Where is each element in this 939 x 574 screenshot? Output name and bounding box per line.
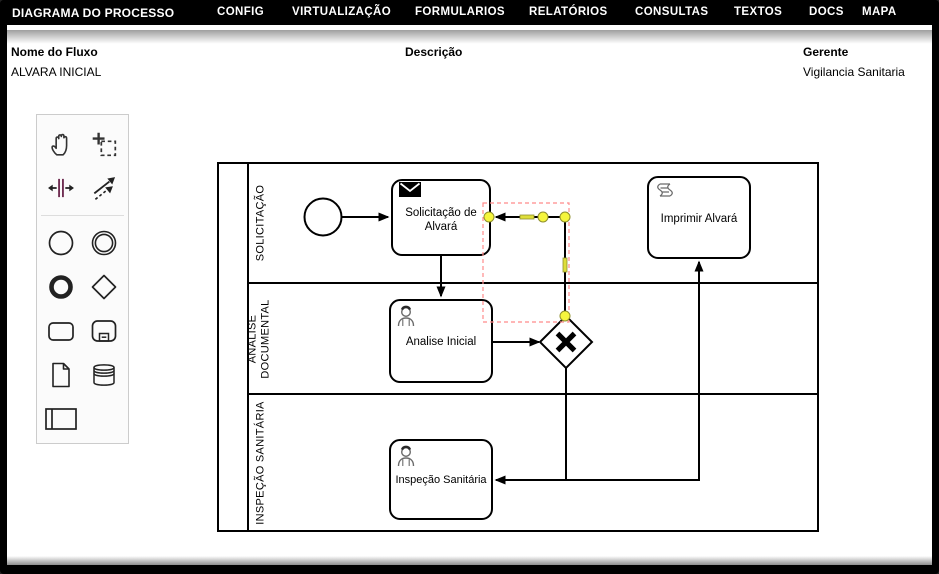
bpmn-canvas[interactable] bbox=[0, 0, 939, 574]
task-imprimir-alvara[interactable] bbox=[648, 177, 750, 258]
bendpoint-handle[interactable] bbox=[538, 212, 548, 222]
exclusive-gateway[interactable] bbox=[540, 316, 592, 368]
selected-connection-overlay bbox=[483, 203, 570, 322]
message-icon bbox=[399, 182, 421, 197]
task-inspecao-sanitaria[interactable] bbox=[390, 440, 492, 519]
bendpoint-handle[interactable] bbox=[560, 212, 570, 222]
panel-bottom-shadow bbox=[7, 556, 932, 565]
segment-handle-vertical[interactable] bbox=[563, 258, 567, 272]
flow-gateway-to-inspecao[interactable] bbox=[496, 368, 566, 480]
flow-to-imprimir[interactable] bbox=[566, 262, 699, 480]
flow-gateway-to-solicitacao-selected[interactable] bbox=[496, 217, 565, 316]
start-event[interactable] bbox=[305, 199, 342, 236]
selection-outline bbox=[483, 203, 569, 322]
bendpoint-handle[interactable] bbox=[560, 311, 570, 321]
task-analise-inicial[interactable] bbox=[390, 300, 492, 382]
segment-handle-horizontal[interactable] bbox=[520, 215, 534, 219]
app-window: DIAGRAMA DO PROCESSO CONFIG VIRTUALIZAÇÃ… bbox=[0, 0, 939, 574]
task-solicitacao-de-alvara[interactable] bbox=[392, 180, 490, 255]
bendpoint-handle[interactable] bbox=[484, 212, 494, 222]
content-panel: Nome do Fluxo ALVARA INICIAL Descrição G… bbox=[7, 25, 932, 565]
